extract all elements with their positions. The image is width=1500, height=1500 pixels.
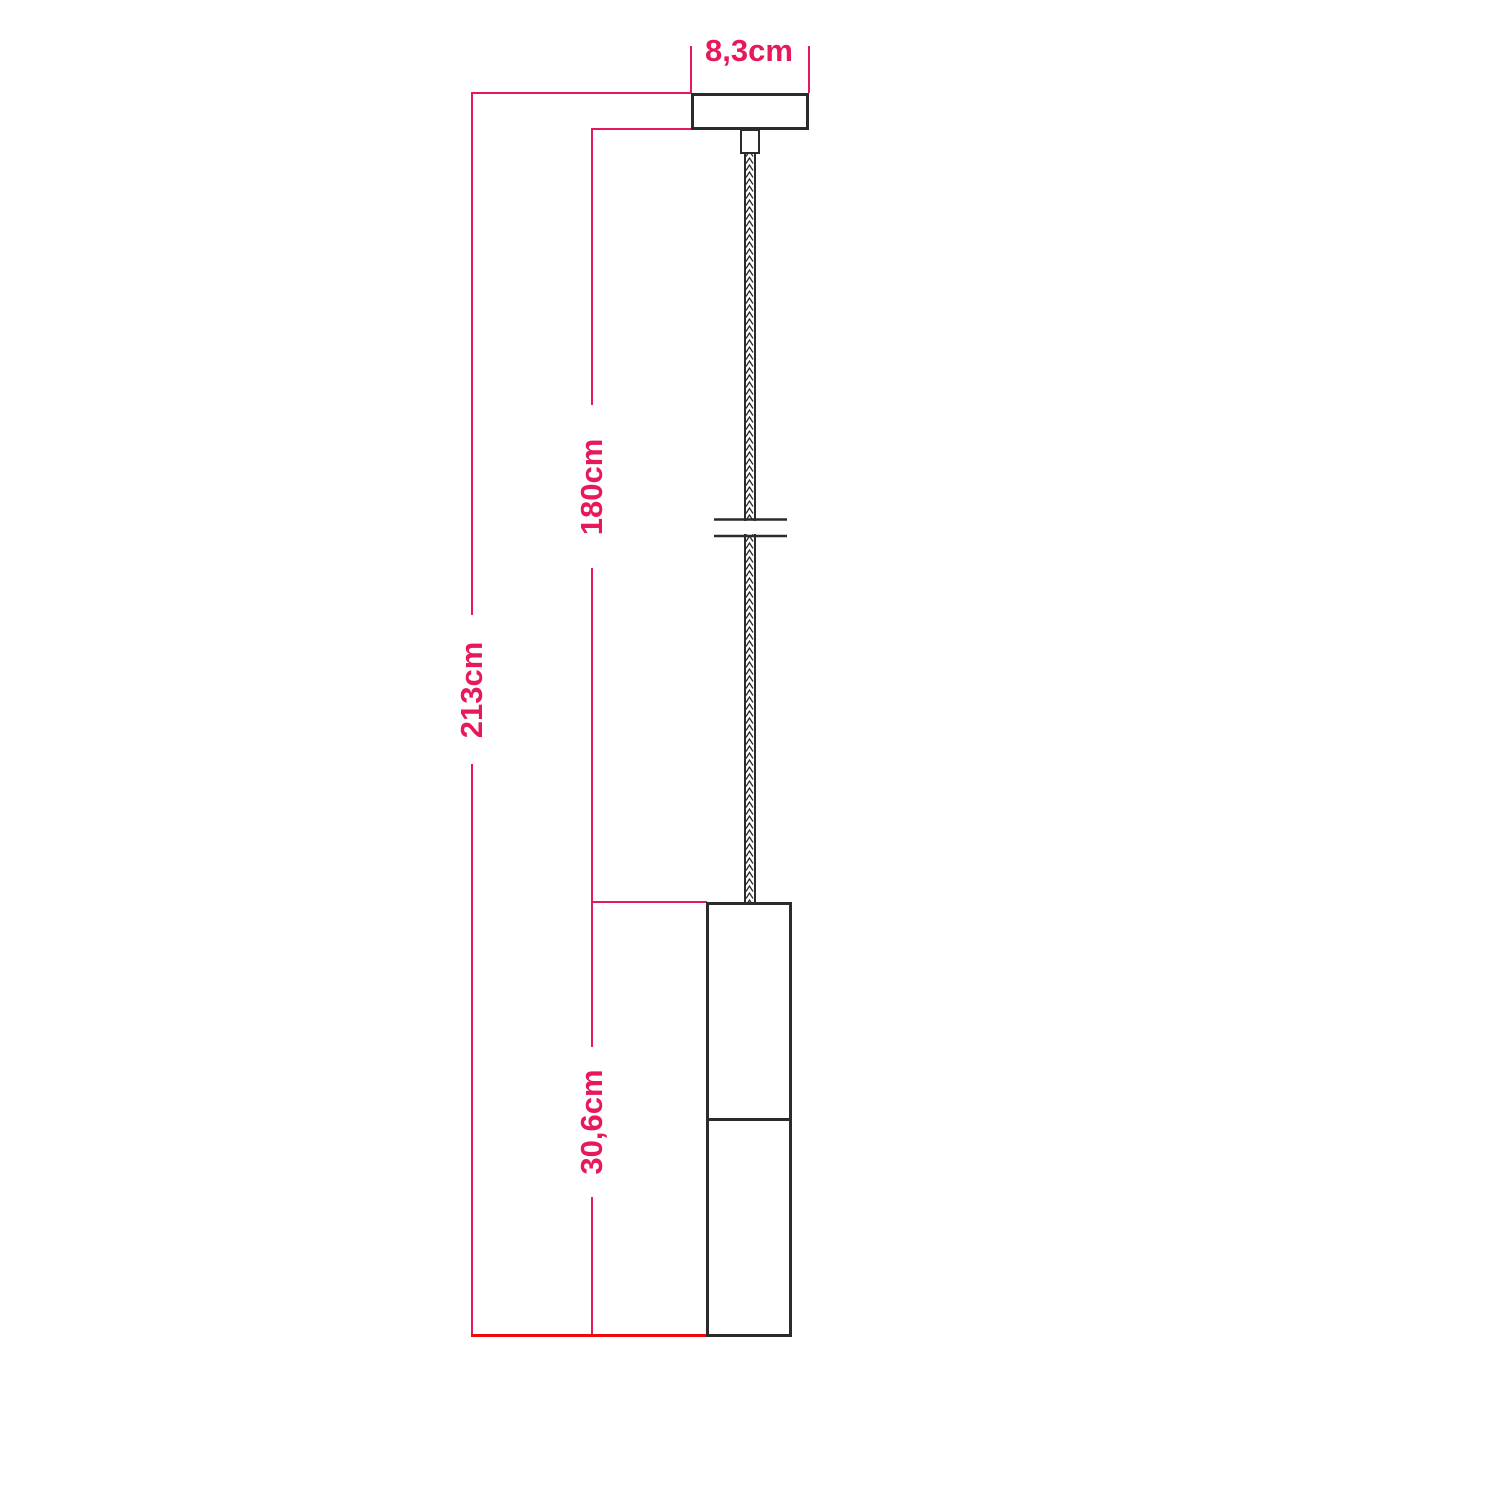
dimension-line-cable-lower bbox=[591, 568, 593, 903]
dimension-label-total-drop: 213cm bbox=[454, 642, 490, 739]
dimension-line-shade-upper bbox=[591, 901, 593, 1047]
dimension-label-cable-length: 180cm bbox=[574, 439, 610, 536]
dimension-line-total-upper bbox=[471, 92, 473, 615]
dimension-line-cable-upper bbox=[591, 128, 593, 405]
ceiling-canopy bbox=[691, 93, 809, 130]
dimension-tick-canopy-left bbox=[690, 46, 692, 93]
lamp-section-divider bbox=[709, 1118, 789, 1121]
dimension-tick-canopy-right bbox=[808, 46, 810, 93]
cable-break-gap bbox=[738, 521, 762, 534]
dimension-line-shade-lower bbox=[591, 1197, 593, 1336]
dimension-extension-total-top bbox=[471, 92, 691, 94]
dimension-line-total-lower bbox=[471, 764, 473, 1336]
baseline-red-line bbox=[471, 1334, 708, 1337]
pendant-cable bbox=[700, 150, 800, 906]
dimension-label-canopy-width: 8,3cm bbox=[705, 33, 793, 69]
lamp-body bbox=[706, 902, 792, 1337]
dimension-extension-shade-top bbox=[591, 901, 707, 903]
dimension-diagram: 8,3cm 213cm 180cm 30,6cm bbox=[0, 0, 1500, 1500]
dimension-label-shade-height: 30,6cm bbox=[574, 1069, 610, 1174]
cable-grip bbox=[740, 129, 760, 154]
